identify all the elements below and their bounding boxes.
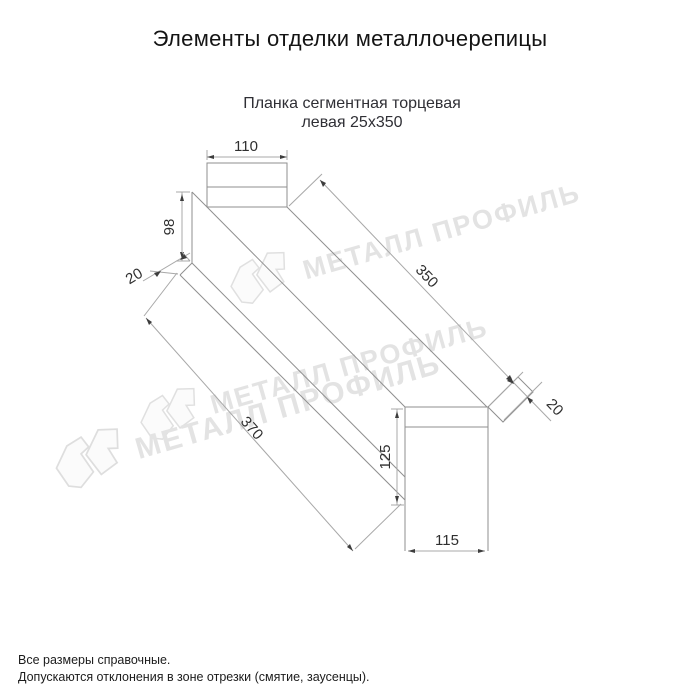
dim-20-left-label: 20 (123, 265, 146, 288)
page-title: Элементы отделки металлочерепицы (0, 26, 700, 52)
metall-profil-logo-icon (225, 249, 295, 308)
dim-115-label: 115 (435, 532, 459, 549)
dim-115: 115 (408, 532, 485, 553)
subtitle-line-2: левая 25х350 (0, 113, 700, 132)
drawing-subtitle: Планка сегментная торцевая левая 25х350 (0, 94, 700, 132)
dim-110: 110 (207, 138, 287, 160)
dim-98-label: 98 (161, 219, 178, 236)
footer-note-2: Допускаются отклонения в зоне отрезки (с… (18, 669, 370, 686)
dim-125-label: 125 (377, 444, 394, 469)
footer-notes: Все размеры справочные. Допускаются откл… (18, 652, 370, 685)
dim-350-label: 350 (412, 261, 442, 291)
dim-125: 125 (377, 409, 404, 505)
dim-110-label: 110 (234, 138, 258, 155)
metall-profil-logo-icon (49, 425, 129, 493)
page: МЕТАЛЛ ПРОФИЛЬ МЕТАЛЛ ПРОФИЛЬ МЕТАЛЛ ПРО… (0, 0, 700, 700)
dim-98: 98 (161, 192, 190, 261)
dim-20-right: 20 (504, 377, 567, 421)
watermark-text: МЕТАЛЛ ПРОФИЛЬ (299, 177, 584, 285)
footer-note-1: Все размеры справочные. (18, 652, 370, 669)
dim-20-left: 20 (123, 252, 190, 288)
subtitle-line-1: Планка сегментная торцевая (0, 94, 700, 113)
